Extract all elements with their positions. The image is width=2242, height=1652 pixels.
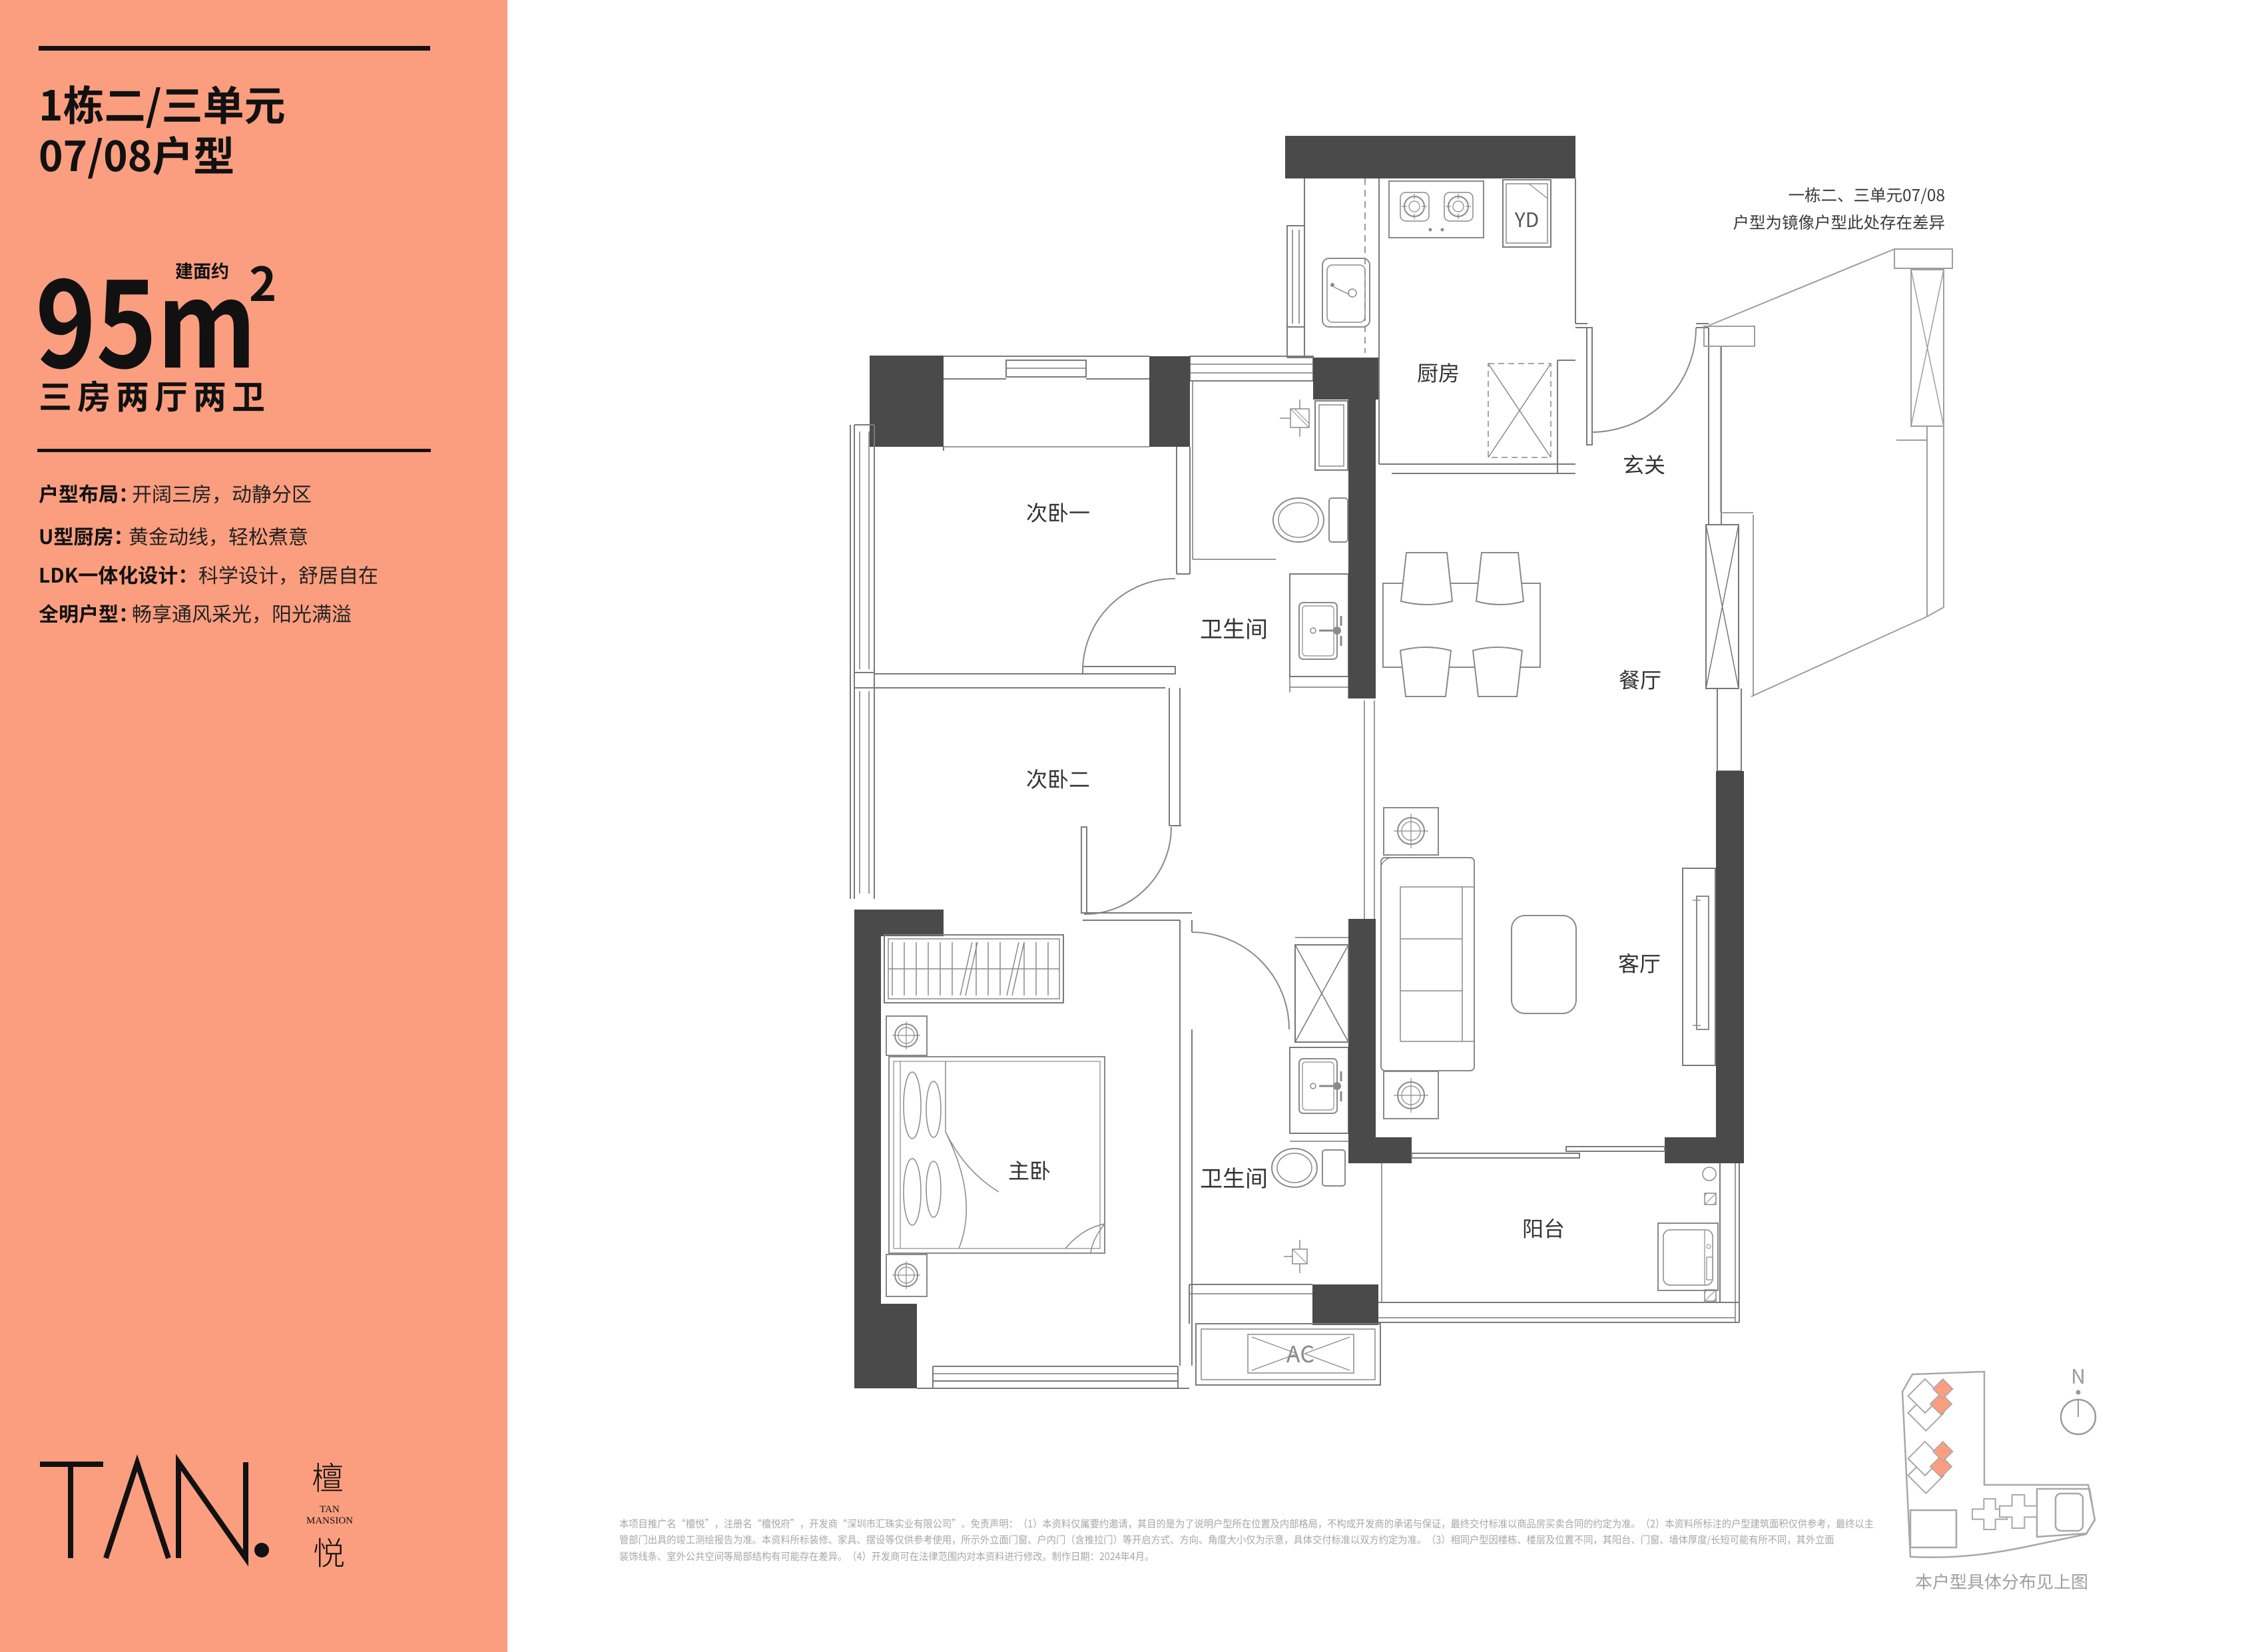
svg-text:TAN: TAN (320, 1504, 340, 1515)
svg-text:MANSION: MANSION (306, 1515, 353, 1526)
